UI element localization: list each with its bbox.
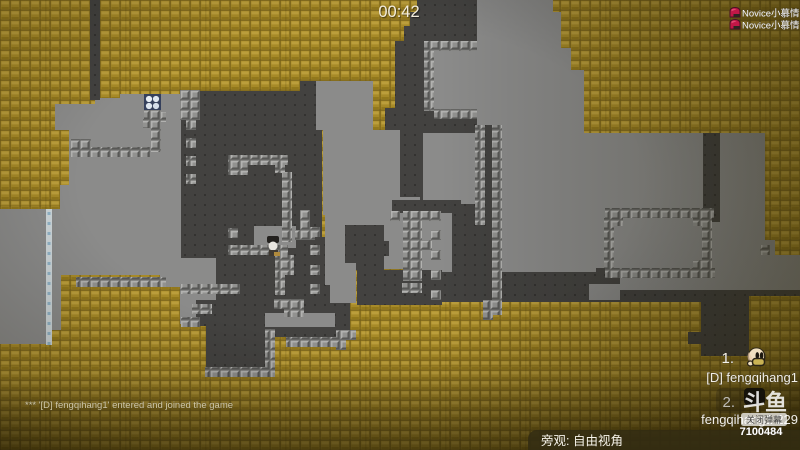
svg-text:斗鱼: 斗鱼 bbox=[743, 390, 787, 415]
svg-text:7100484: 7100484 bbox=[740, 426, 784, 438]
svg-text:Novice小慕情: Novice小慕情 bbox=[742, 20, 800, 32]
svg-text:00:42: 00:42 bbox=[378, 3, 419, 21]
svg-text:旁观: 自由视角: 旁观: 自由视角 bbox=[541, 433, 623, 448]
svg-text:Novice小慕情: Novice小慕情 bbox=[742, 8, 800, 20]
svg-text:1.: 1. bbox=[721, 350, 734, 367]
svg-text:[D] fengqihang1: [D] fengqihang1 bbox=[706, 370, 798, 385]
svg-text:*** '[D] fengqihang1' entered: *** '[D] fengqihang1' entered and joined… bbox=[25, 400, 233, 411]
svg-text:关闭弹幕: 关闭弹幕 bbox=[746, 414, 782, 425]
